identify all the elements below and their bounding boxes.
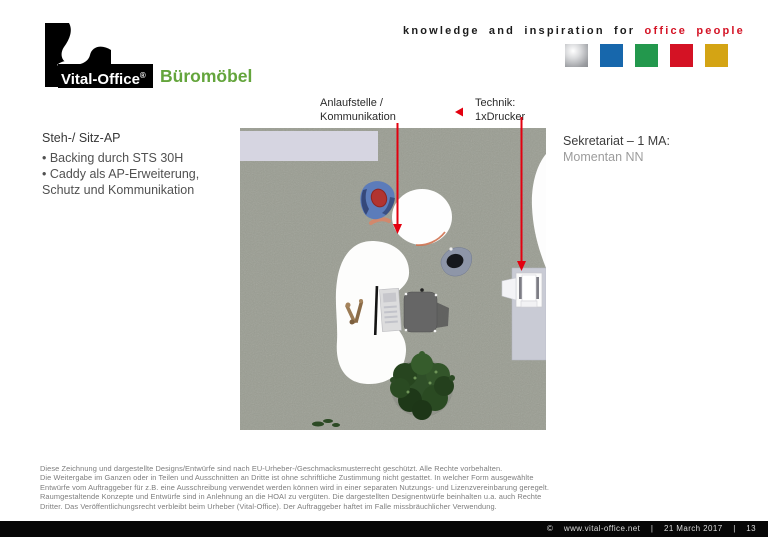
logo-suffix-text: Büromöbel <box>160 64 252 88</box>
left-line: • Caddy als AP-Erweiterung, <box>42 166 199 182</box>
palette-square-red <box>670 44 693 67</box>
disclaimer-line: Dritter. Das Veröffentlichungsrecht verb… <box>40 502 549 511</box>
logo-brand-text: Vital-Office <box>61 71 140 88</box>
footer-separator: | <box>651 524 653 533</box>
footer-separator: | <box>733 524 735 533</box>
callout-anlaufstelle: Anlaufstelle / Kommunikation <box>320 96 396 124</box>
round-table <box>392 189 452 245</box>
copyright-symbol: © <box>547 524 553 533</box>
palette-square-green <box>635 44 658 67</box>
callout-technik-line2: 1xDrucker <box>475 110 525 124</box>
callout-technik: Technik: 1xDrucker <box>475 96 525 124</box>
right-subtitle: Momentan NN <box>563 149 670 165</box>
left-line: Schutz und Kommunikation <box>42 182 199 198</box>
sekretariat-note: Sekretariat – 1 MA: Momentan NN <box>563 133 670 165</box>
right-title: Sekretariat – 1 MA: <box>563 133 670 149</box>
brand-palette <box>565 44 728 67</box>
disclaimer-line: Diese Zeichnung und dargestellte Designs… <box>40 464 549 473</box>
floor-plan-rendering <box>240 128 546 430</box>
footer-bar: © www.vital-office.net | 21 March 2017 |… <box>0 521 768 537</box>
workstation-notes: Steh-/ Sitz-AP • Backing durch STS 30H •… <box>42 131 199 198</box>
callout-anlaufstelle-line2: Kommunikation <box>320 110 396 124</box>
palette-square-silver <box>565 44 588 67</box>
footer-page-number: 13 <box>746 524 756 533</box>
left-line: • Backing durch STS 30H <box>42 150 199 166</box>
tagline-red: office people <box>645 25 745 37</box>
disclaimer-line: Entwürfe vom Auftraggeber für z.B. eine … <box>40 483 549 492</box>
disclaimer-line: Raumgestaltende Konzepte und Entwürfe si… <box>40 492 549 501</box>
left-title: Steh-/ Sitz-AP <box>42 131 199 145</box>
keyboard <box>380 288 402 331</box>
legal-disclaimer: Diese Zeichnung und dargestellte Designs… <box>40 464 549 511</box>
footer-site: www.vital-office.net <box>564 524 640 533</box>
registered-mark: ® <box>140 71 146 80</box>
disclaimer-line: Die Weitergabe im Ganzen oder in Teilen … <box>40 473 549 482</box>
palette-square-gold <box>705 44 728 67</box>
palette-square-blue <box>600 44 623 67</box>
tagline-black: knowledge and inspiration for <box>403 25 635 37</box>
callout-technik-line1: Technik: <box>475 96 525 110</box>
wall-cabinet-top <box>240 131 378 161</box>
technik-left-marker-icon <box>455 108 463 117</box>
logo-wordmark: Vital-Office® <box>58 64 153 88</box>
footer-date: 21 March 2017 <box>664 524 723 533</box>
callout-anlaufstelle-line1: Anlaufstelle / <box>320 96 396 110</box>
presentation-slide: Vital-Office® Büromöbel knowledge and in… <box>0 0 768 543</box>
tagline: knowledge and inspiration for office peo… <box>403 25 745 37</box>
